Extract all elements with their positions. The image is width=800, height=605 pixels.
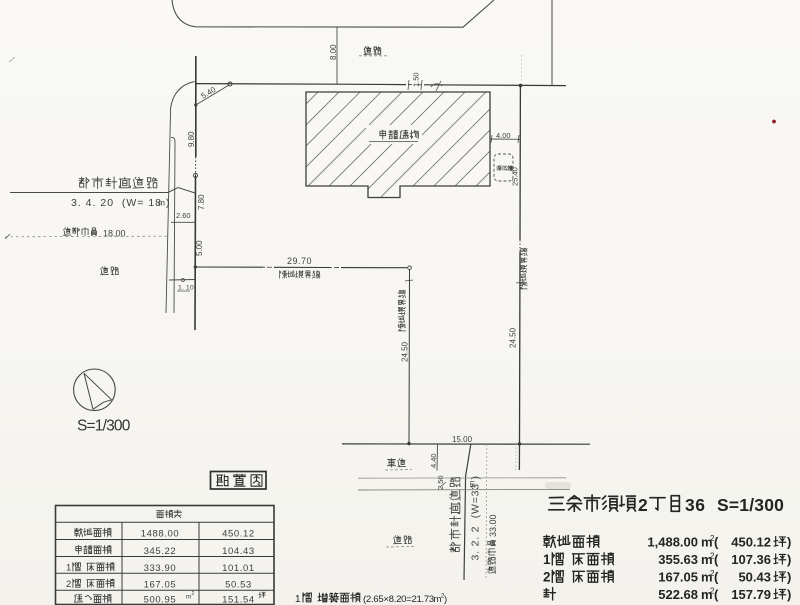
svg-text:25.40: 25.40 bbox=[511, 167, 520, 186]
svg-text:S=1/300: S=1/300 bbox=[77, 418, 131, 435]
svg-text:(2.65×8.20=21.73: (2.65×8.20=21.73 bbox=[363, 594, 434, 605]
svg-text:8.00: 8.00 bbox=[329, 44, 338, 60]
svg-text:522.68: 522.68 bbox=[658, 587, 698, 602]
svg-text:1: 1 bbox=[295, 594, 301, 605]
svg-text:15.00: 15.00 bbox=[452, 435, 473, 444]
svg-text:157.79: 157.79 bbox=[731, 587, 771, 602]
svg-text:): ) bbox=[787, 552, 791, 567]
svg-text:4.40: 4.40 bbox=[429, 453, 438, 468]
svg-text:1.50: 1.50 bbox=[412, 72, 421, 87]
svg-text:29.70: 29.70 bbox=[287, 256, 312, 266]
svg-text:355.63: 355.63 bbox=[658, 552, 698, 567]
svg-text:24.50: 24.50 bbox=[509, 327, 518, 348]
svg-text:.: . bbox=[182, 285, 184, 292]
svg-text:167.05: 167.05 bbox=[144, 579, 177, 590]
svg-text:S=1/300: S=1/300 bbox=[717, 495, 784, 515]
svg-text:5.00: 5.00 bbox=[195, 240, 204, 256]
svg-text:): ) bbox=[470, 476, 482, 480]
svg-text:500.95: 500.95 bbox=[144, 595, 177, 605]
svg-text:): ) bbox=[787, 587, 791, 602]
svg-text:2: 2 bbox=[638, 495, 648, 515]
svg-text:0: 0 bbox=[190, 285, 194, 292]
svg-text:m: m bbox=[466, 481, 476, 488]
svg-text:1488.00: 1488.00 bbox=[141, 529, 180, 540]
svg-text:1: 1 bbox=[66, 563, 71, 574]
svg-text:m: m bbox=[158, 197, 165, 207]
svg-text:(: ( bbox=[714, 587, 719, 602]
svg-text:167.05: 167.05 bbox=[658, 570, 698, 585]
svg-text:50.53: 50.53 bbox=[225, 579, 252, 590]
svg-text:): ) bbox=[787, 535, 791, 550]
svg-text:36: 36 bbox=[685, 495, 705, 515]
svg-text:450.12: 450.12 bbox=[731, 535, 771, 550]
svg-text:2: 2 bbox=[192, 591, 195, 597]
svg-text:9.80: 9.80 bbox=[187, 131, 196, 147]
svg-text:2.60: 2.60 bbox=[176, 211, 191, 220]
svg-text:50.43: 50.43 bbox=[738, 570, 771, 585]
svg-text:): ) bbox=[787, 570, 791, 585]
svg-text:): ) bbox=[166, 197, 170, 209]
svg-text:4.00: 4.00 bbox=[496, 131, 511, 140]
svg-text:(: ( bbox=[714, 552, 719, 567]
svg-text:2: 2 bbox=[66, 579, 71, 590]
svg-text:3. 4. 20 (W= 18: 3. 4. 20 (W= 18 bbox=[71, 197, 162, 209]
svg-text:18.00: 18.00 bbox=[103, 229, 126, 239]
svg-text:1,488.00: 1,488.00 bbox=[647, 535, 698, 550]
svg-text:2.50: 2.50 bbox=[436, 475, 445, 490]
svg-text:450.12: 450.12 bbox=[222, 529, 255, 540]
svg-text:104.43: 104.43 bbox=[222, 546, 255, 557]
svg-text:2: 2 bbox=[543, 570, 551, 585]
svg-text:3. 2. 2 (W=33: 3. 2. 2 (W=33 bbox=[470, 483, 482, 560]
svg-text:107.36: 107.36 bbox=[731, 552, 771, 567]
svg-text:7.80: 7.80 bbox=[197, 194, 206, 210]
svg-text:345.22: 345.22 bbox=[144, 546, 177, 557]
svg-text:151.54: 151.54 bbox=[222, 595, 255, 605]
svg-text:(: ( bbox=[714, 570, 719, 585]
svg-text:24.50: 24.50 bbox=[401, 341, 410, 362]
svg-text:1: 1 bbox=[543, 552, 551, 567]
svg-text:): ) bbox=[444, 594, 447, 605]
svg-text:333.90: 333.90 bbox=[144, 563, 177, 574]
svg-text:(: ( bbox=[714, 535, 719, 550]
svg-text:101.01: 101.01 bbox=[222, 563, 255, 574]
svg-text:33.00: 33.00 bbox=[488, 514, 498, 537]
